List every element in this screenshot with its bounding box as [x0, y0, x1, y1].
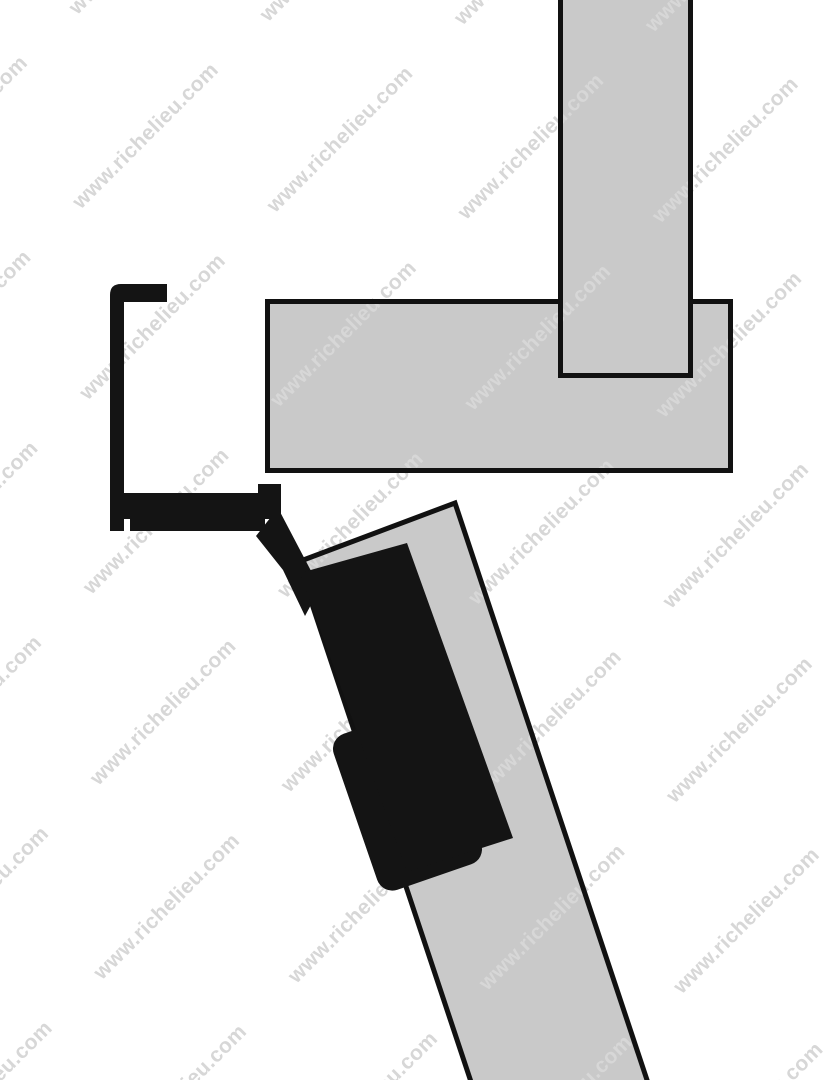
hinge-cup — [300, 543, 513, 872]
diagram-canvas: www.richelieu.comwww.richelieu.comwww.ri… — [0, 0, 836, 1080]
mounting-bracket-profile — [110, 284, 281, 531]
cabinet-side-panel-outline — [561, 0, 691, 376]
cabinet-top-panel-outline — [268, 302, 731, 471]
outline-and-hardware-layer — [0, 0, 836, 1080]
